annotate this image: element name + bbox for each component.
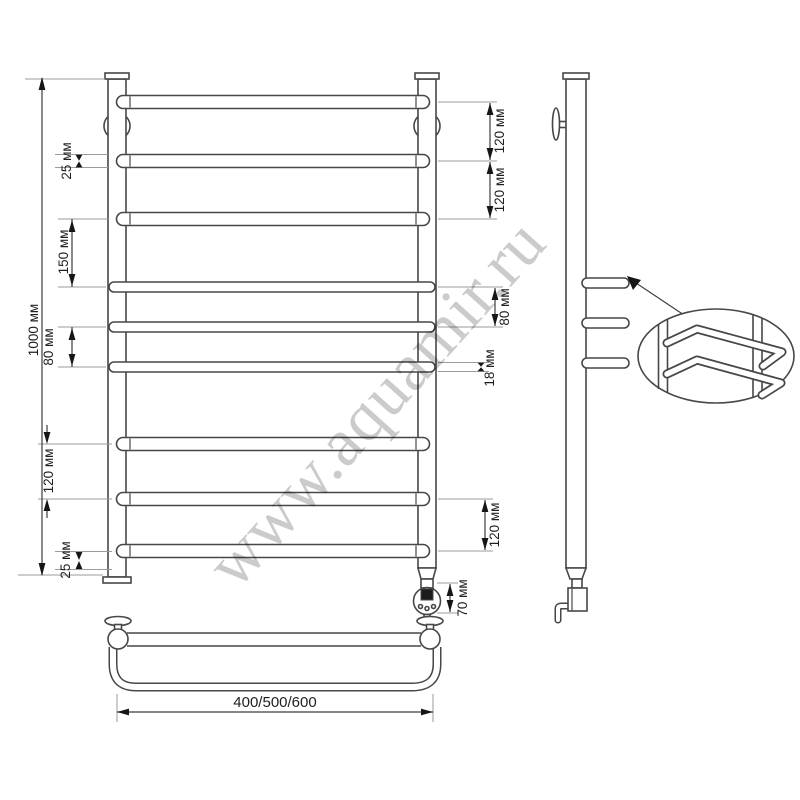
side-rail-stub bbox=[582, 358, 629, 368]
shelf-view bbox=[105, 617, 443, 688]
rail-bent bbox=[109, 282, 435, 292]
dim-label-150: 150 мм bbox=[56, 230, 71, 275]
side-bottom-fitting bbox=[558, 588, 587, 620]
dim-label-120-right-3: 120 мм bbox=[487, 503, 502, 548]
rail bbox=[117, 213, 430, 226]
side-protruding-rails bbox=[582, 278, 629, 368]
dim-label-120-right-1: 120 мм bbox=[492, 109, 507, 154]
dim-label-120-left: 120 мм bbox=[41, 449, 56, 494]
dim-label-width-options: 400/500/600 bbox=[233, 694, 316, 711]
dim-label-25-top: 25 мм bbox=[59, 142, 74, 179]
shelf-ball-left bbox=[108, 629, 128, 649]
heater-led bbox=[432, 605, 436, 609]
rail bbox=[117, 155, 430, 168]
side-tube bbox=[563, 73, 589, 588]
side-rail-stub bbox=[582, 318, 629, 328]
rail-bent bbox=[109, 322, 435, 332]
heater-led bbox=[419, 605, 423, 609]
heater-led bbox=[425, 607, 429, 611]
dim-label-total-height: 1000 мм bbox=[26, 304, 41, 356]
heater-display bbox=[421, 589, 433, 600]
dim-label-25-bottom: 25 мм bbox=[58, 541, 73, 578]
rail bbox=[117, 96, 430, 109]
dim-label-80-left: 80 мм bbox=[41, 328, 56, 365]
shelf-front-bar bbox=[113, 647, 437, 687]
dim-label-70: 70 мм bbox=[455, 579, 470, 616]
detail-callout bbox=[627, 276, 794, 403]
dim-label-18: 18 мм bbox=[482, 349, 497, 386]
side-view bbox=[553, 73, 630, 620]
shelf-ball-right bbox=[420, 629, 440, 649]
technical-drawing-towel-rail: 1000 мм 25 мм 150 мм 80 мм 120 мм 25 мм … bbox=[0, 0, 800, 800]
side-rail-stub bbox=[582, 278, 629, 288]
heater-unit bbox=[414, 588, 441, 620]
